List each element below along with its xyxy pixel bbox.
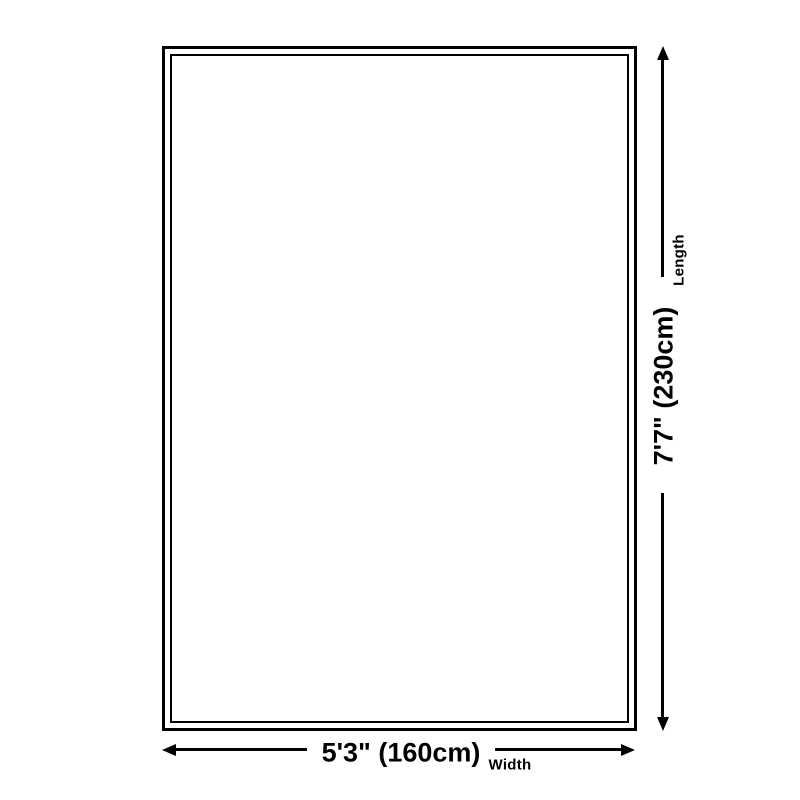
length-arrow-line-lower [661, 493, 664, 717]
width-value-label: 5'3" (160cm) [322, 738, 481, 769]
rug-outline [162, 46, 637, 731]
dimension-diagram: Length 7'7" (230cm) 5'3" (160cm) Width [0, 0, 800, 800]
arrow-down-icon [657, 717, 669, 731]
arrow-left-icon [162, 744, 176, 756]
length-axis-label: Length [671, 234, 688, 286]
length-value-label: 7'7" (230cm) [649, 307, 680, 466]
length-arrow-line-upper [661, 58, 664, 277]
arrow-right-icon [621, 744, 635, 756]
width-arrow-line-right [495, 748, 622, 751]
rug-inner-border [170, 54, 629, 723]
width-axis-label: Width [488, 757, 531, 774]
width-arrow-line-left [175, 748, 307, 751]
